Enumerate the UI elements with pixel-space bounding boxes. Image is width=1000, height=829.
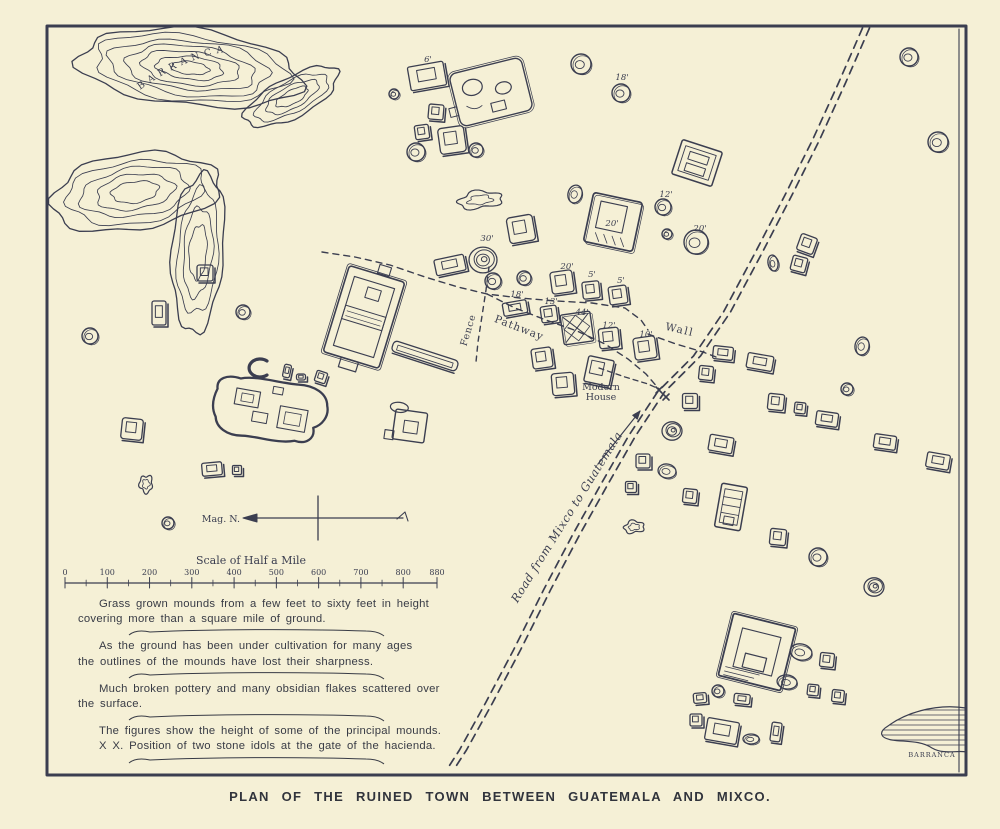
mound-height-label: 6' <box>424 55 432 65</box>
mound-rect <box>201 461 224 478</box>
mound-sq <box>794 402 808 416</box>
mound-sq <box>682 488 700 506</box>
mound-ring <box>662 422 682 440</box>
mound-round <box>389 89 400 100</box>
mound-rect <box>712 345 735 362</box>
mound-sq <box>197 265 215 283</box>
mound-rect <box>815 411 841 430</box>
mound-sq <box>608 285 631 308</box>
mound-sq <box>789 255 810 276</box>
mound-sq <box>120 417 145 442</box>
scale-tick-label: 600 <box>311 568 326 577</box>
mound-sq <box>540 305 560 325</box>
mound-sq <box>626 482 639 495</box>
note-line: The figures show the height of some of t… <box>78 724 474 739</box>
mound-rect <box>704 717 742 747</box>
mound-ring <box>864 578 884 596</box>
mound-round <box>407 143 426 162</box>
flourish-rule <box>126 713 388 722</box>
mound-sq <box>428 104 446 122</box>
mound-blob <box>623 519 645 535</box>
mound-height-label: 5' <box>617 276 625 286</box>
mound-rect <box>407 61 449 93</box>
scale-tick-label: 100 <box>100 568 115 577</box>
mound-height-label: 20' <box>559 262 573 272</box>
mound-sq <box>807 684 821 698</box>
mound-height-label: 30' <box>480 234 493 244</box>
compass-tail <box>397 512 408 521</box>
mound-height-label: 20' <box>692 224 706 234</box>
note-line: Grass grown mounds from a few feet to si… <box>78 597 474 612</box>
mound-oval <box>743 734 760 745</box>
mound-sq <box>551 372 577 398</box>
flourish-rule <box>126 671 388 680</box>
road <box>456 28 870 767</box>
mound-longmound <box>390 340 459 373</box>
note-line: As the ground has been under cultivation… <box>78 639 474 654</box>
mound-height-label: 18' <box>615 73 628 83</box>
barranca-label-bottom: BARRANCA <box>908 751 955 759</box>
mound-height-label: 10' <box>639 330 652 340</box>
map-plate: BARRANCABARRANCAMag. N.Scale of Half a M… <box>0 0 1000 829</box>
mound-sq <box>437 125 469 157</box>
mound-sq <box>550 269 577 296</box>
note-line: the outlines of the mounds have lost the… <box>78 655 474 670</box>
mound-round <box>469 143 484 158</box>
scale-tick-label: 300 <box>184 568 199 577</box>
mound-pyramid <box>716 611 798 693</box>
mound-sq <box>819 652 837 670</box>
mound-sq <box>769 528 789 548</box>
scale-tick-label: 880 <box>429 568 444 577</box>
mound-rect <box>769 722 784 744</box>
map-label: Road from Mixco to Guatemala <box>507 429 625 606</box>
scale-tick-label: 400 <box>226 568 241 577</box>
note-paragraph: X X. Position of two stone idols at the … <box>78 739 474 754</box>
mound-round <box>928 132 949 153</box>
flourish-rule <box>126 628 388 637</box>
note-paragraph: As the ground has been under cultivation… <box>78 639 474 669</box>
note-paragraph: The figures show the height of some of t… <box>78 724 474 739</box>
mound-oval <box>657 463 678 481</box>
mound-tworoom <box>671 139 722 186</box>
mound-round <box>236 305 251 320</box>
mound-round <box>712 685 725 698</box>
map-caption: PLAN OF THE RUINED TOWN BETWEEN GUATEMAL… <box>0 789 1000 804</box>
scale-tick-label: 700 <box>353 568 368 577</box>
map-label: Fence <box>459 313 479 348</box>
mound-annex <box>384 401 429 444</box>
mound-round <box>655 199 672 216</box>
notes-block: Grass grown mounds from a few feet to si… <box>78 597 474 767</box>
compass-arrowhead <box>243 514 257 522</box>
mound-rect <box>693 692 709 705</box>
mound-sq <box>683 394 700 411</box>
mound-sq <box>531 346 556 371</box>
mound-height-label: 13' <box>544 297 557 307</box>
note-line: X X. Position of two stone idols at the … <box>78 739 474 754</box>
mound-rect <box>925 452 953 473</box>
note-paragraph: Much broken pottery and many obsidian fl… <box>78 682 474 712</box>
mound-rect <box>282 364 294 381</box>
mound-blob <box>456 187 503 211</box>
note-line: covering more than a square mile of grou… <box>78 612 474 627</box>
mound-rect <box>297 374 308 382</box>
mound-sq <box>698 365 716 383</box>
mound-rect <box>746 352 777 374</box>
mound-height-label: 5' <box>588 270 596 280</box>
mound-sq <box>414 124 432 142</box>
compass-label: Mag. N. <box>202 514 240 525</box>
mound-round <box>612 84 631 103</box>
mound-rect <box>152 301 168 327</box>
map-label: Wall <box>664 321 695 339</box>
mound-round <box>900 48 919 67</box>
mound-sq <box>506 214 538 246</box>
map-label: Pathway <box>493 313 546 343</box>
mound-tall <box>714 483 747 531</box>
map-label: House <box>586 392 617 403</box>
mound-round <box>82 328 99 345</box>
mound-round <box>162 517 175 530</box>
mound-height-label: 44' <box>574 308 588 318</box>
mound-sq <box>233 466 244 477</box>
mound-sq <box>313 370 329 386</box>
note-paragraph: Grass grown mounds from a few feet to si… <box>78 597 474 627</box>
mound-round <box>571 54 592 75</box>
mound-height-label: 20' <box>604 219 618 229</box>
flourish-rule <box>126 756 388 765</box>
mound-rect <box>707 434 736 456</box>
mound-rect <box>733 693 752 707</box>
mound-sq <box>690 714 704 728</box>
scale-title: Scale of Half a Mile <box>196 554 306 567</box>
mound-round <box>841 383 854 396</box>
mound-oval <box>767 254 781 272</box>
mound-sq <box>831 689 846 704</box>
mound-sq <box>767 393 787 413</box>
note-line: Much broken pottery and many obsidian fl… <box>78 682 474 697</box>
scale-tick-label: 200 <box>142 568 157 577</box>
mound-round <box>517 271 532 286</box>
barranca-label-top: BARRANCA <box>135 43 229 92</box>
mound-cshape <box>249 359 267 377</box>
mound-oval <box>566 183 585 205</box>
mound-oval <box>853 336 871 357</box>
scale-tick-label: 800 <box>396 568 411 577</box>
mound-sq <box>636 454 652 470</box>
note-line: the surface. <box>78 697 474 712</box>
mound-ring <box>469 247 497 273</box>
mound-height-label: 18' <box>510 290 523 300</box>
scale-tick-label: 0 <box>62 568 67 577</box>
mound-rect <box>873 434 899 453</box>
scale-tick-label: 500 <box>269 568 284 577</box>
mound-platform <box>440 54 536 131</box>
mound-sq <box>582 280 603 301</box>
mound-oval <box>776 674 799 692</box>
mound-rect <box>434 254 469 278</box>
mound-blob <box>139 475 153 494</box>
mound-round <box>662 229 673 240</box>
mound-round <box>809 548 828 567</box>
mound-sq <box>795 233 819 257</box>
mound-ballcourt <box>318 255 409 378</box>
mound-enclosure <box>208 370 331 450</box>
mound-height-label: 12' <box>659 190 672 200</box>
mound-height-label: 12' <box>602 321 615 331</box>
